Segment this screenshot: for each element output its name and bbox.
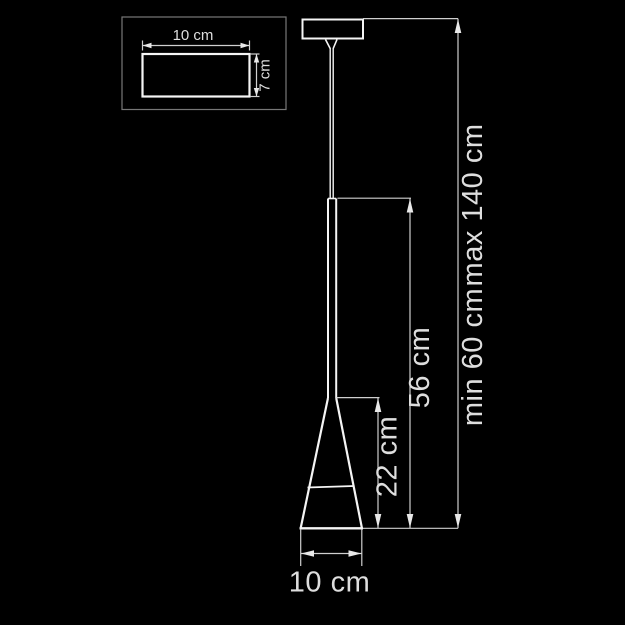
inset-height-label: 7 cm <box>257 59 274 92</box>
max-height-label: max 140 cm <box>457 124 489 287</box>
inset-width-label: 10 cm <box>173 27 214 44</box>
diagram-background <box>0 0 625 625</box>
shade-diameter-label: 10 cm <box>289 567 370 599</box>
shade-height-label: 22 cm <box>372 416 404 497</box>
min-height-label: min 60 cm <box>457 288 489 426</box>
dimension-diagram: 10 cm 7 cm <box>0 0 625 625</box>
fixed-section-label: 56 cm <box>404 327 436 408</box>
